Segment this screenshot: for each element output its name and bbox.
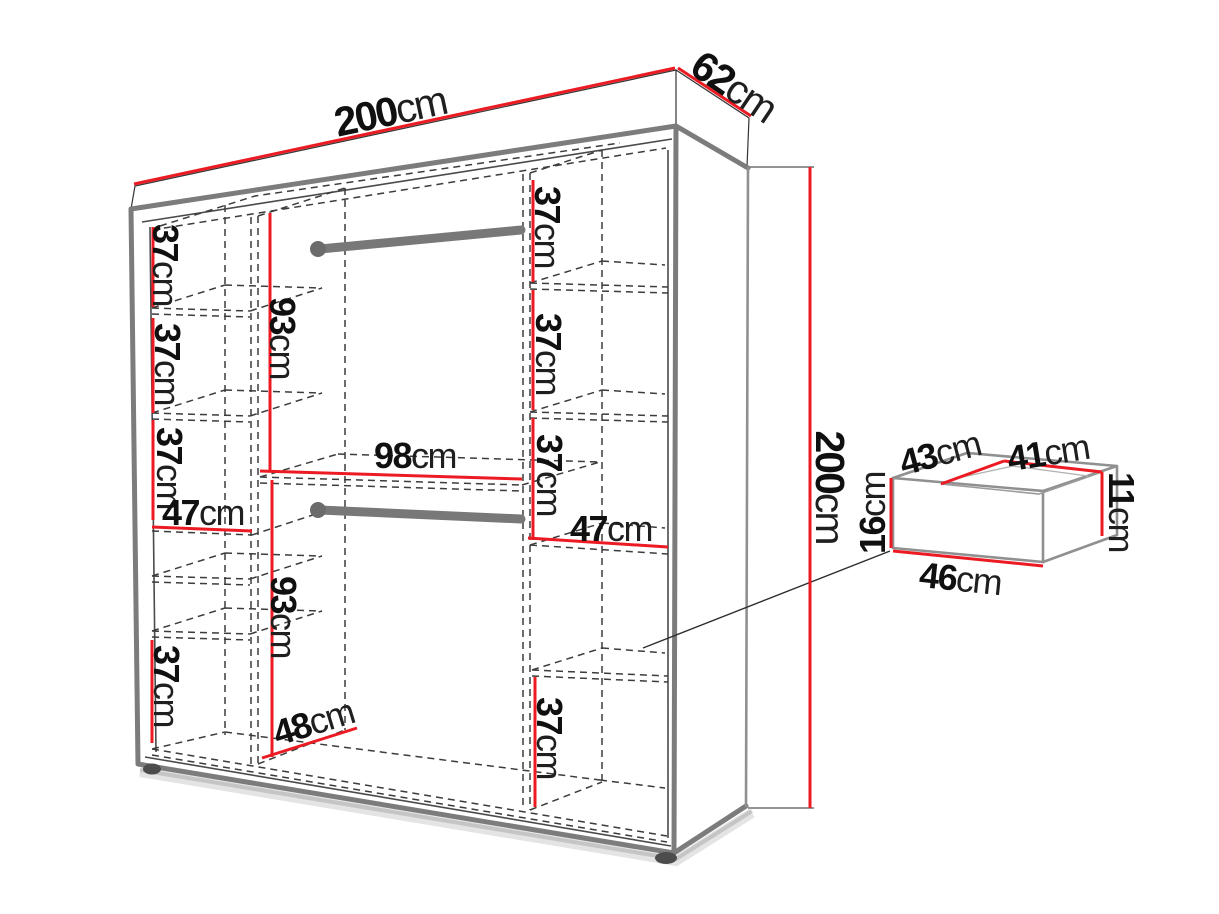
dim-label-right-bottom-section: 37cm — [529, 697, 570, 779]
front-face — [131, 126, 676, 853]
dim-label-hanging-bottom: 93cm — [263, 576, 304, 658]
dim-label-drawer-inner-height: 11cm — [1101, 472, 1142, 552]
dim-label-right-section-3: 37cm — [529, 434, 570, 516]
right-foot — [655, 852, 677, 864]
dim-label-right-shelf-width: 47cm — [570, 508, 652, 549]
height-extension-lines — [748, 167, 814, 808]
diagram-canvas: 200cm 62cm 200cm 37cm 37cm 37cm 47cm 37c… — [0, 0, 1219, 914]
rod-end-cap — [310, 502, 326, 518]
left-foot — [143, 764, 161, 775]
right-side-face — [674, 126, 748, 853]
dim-label-middle-shelf-width: 98cm — [374, 435, 456, 476]
dim-label-left-section-2: 37cm — [147, 323, 188, 405]
dim-label-left-bottom-section: 37cm — [146, 645, 187, 727]
dim-label-left-shelf-width: 47cm — [162, 492, 244, 533]
dim-label-right-section-1: 37cm — [527, 186, 568, 268]
dim-label-right-section-2: 37cm — [528, 313, 569, 395]
dim-label-overall-height: 200cm — [807, 430, 853, 543]
dim-label-hanging-top: 93cm — [262, 297, 303, 379]
dim-label-drawer-bottom-width: 46cm — [917, 554, 1003, 603]
wardrobe-dimension-diagram: 200cm 62cm 200cm 37cm 37cm 37cm 47cm 37c… — [0, 0, 1219, 914]
dim-label-left-section-1: 37cm — [145, 224, 186, 306]
rod-end-cap — [310, 241, 326, 257]
dim-label-drawer-front-height: 16cm — [852, 472, 893, 554]
